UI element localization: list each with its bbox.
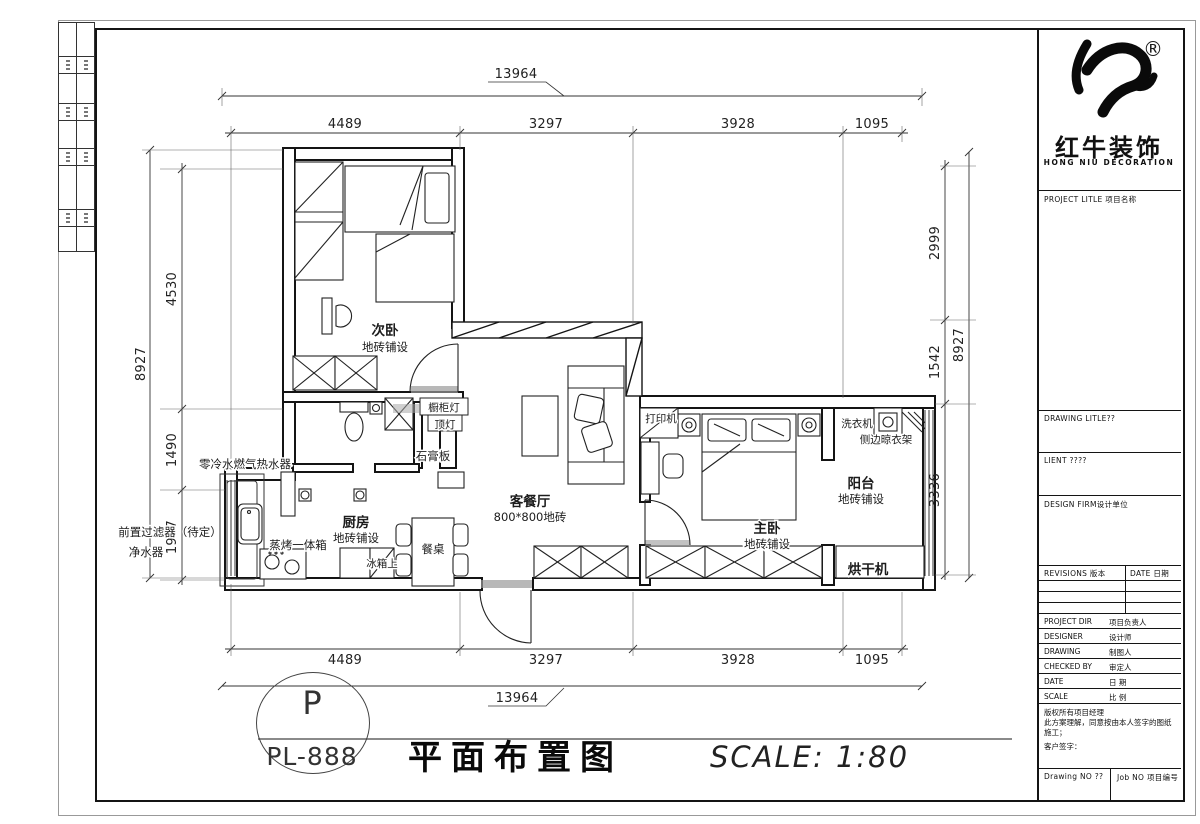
row-label-cn: 项目负责人 bbox=[1109, 617, 1147, 628]
room-kitchen-finish: 地砖铺设 bbox=[333, 531, 379, 545]
label-washer: 洗衣机 bbox=[841, 417, 873, 430]
room-master-finish: 地砖铺设 bbox=[744, 537, 790, 551]
tb-drawing-title-section: DRAWING LITLE?? bbox=[1037, 410, 1181, 452]
room-bedroom2-finish: 地砖铺设 bbox=[362, 340, 408, 354]
label-ceiling-light: 顶灯 bbox=[435, 419, 456, 431]
dim-bottom-seg2: 3928 bbox=[721, 653, 755, 668]
furniture bbox=[238, 162, 925, 586]
room-master-name: 主卧 bbox=[754, 520, 782, 537]
chair bbox=[396, 524, 411, 546]
tb-client-section: LIENT ???? bbox=[1037, 452, 1181, 495]
hongniu-bull-logo: ® bbox=[1057, 38, 1161, 126]
room-living-name: 客餐厅 bbox=[509, 493, 551, 510]
label-cabinet-light: 橱柜灯 bbox=[428, 401, 460, 414]
sofa-pillow bbox=[574, 394, 605, 425]
tb-row-designer: DESIGNER 设计师 bbox=[1037, 628, 1181, 644]
design-firm-label: DESIGN FIRM设计单位 bbox=[1044, 499, 1128, 510]
drawing-no-label: Drawing NO ?? bbox=[1044, 772, 1103, 781]
badge-letter: P bbox=[256, 684, 368, 722]
revision-row bbox=[1037, 602, 1181, 603]
downlight bbox=[301, 491, 309, 499]
door-bedroom2 bbox=[410, 344, 458, 392]
downlight bbox=[356, 491, 364, 499]
revision-row bbox=[1037, 580, 1181, 581]
label-pre-filter: 前置过滤器（待定） bbox=[118, 525, 222, 539]
tb-project-section: PROJECT LITLE 项目名称 bbox=[1037, 190, 1181, 410]
label-water-purifier: 净水器 bbox=[129, 545, 164, 559]
dim-right-overall: 8927 bbox=[952, 328, 967, 362]
label-fridge: 冰箱上 bbox=[366, 557, 398, 570]
revision-date-label: DATE 日期 bbox=[1130, 568, 1169, 579]
chair-bedroom2 bbox=[336, 305, 352, 327]
label-side-rack: 侧边晾衣架 bbox=[860, 433, 913, 446]
room-balcony-name: 阳台 bbox=[848, 475, 875, 492]
label-gypsum-board: 石膏板 bbox=[416, 449, 451, 463]
tb-row-date: DATE 日 期 bbox=[1037, 673, 1181, 689]
row-label-cn: 审定人 bbox=[1109, 662, 1132, 673]
room-kitchen-name: 厨房 bbox=[343, 514, 370, 531]
chair-master bbox=[663, 454, 683, 478]
door-entrance bbox=[480, 591, 531, 643]
dimension-lines bbox=[142, 82, 976, 706]
tb-design-firm-section: DESIGN FIRM设计单位 bbox=[1037, 495, 1181, 565]
dim-right-seg1: 1542 bbox=[928, 345, 943, 379]
dim-top-seg0: 4489 bbox=[328, 117, 362, 132]
dimension-text: 13964 4489 3297 3928 1095 4489 3297 3928… bbox=[134, 67, 967, 706]
dim-bottom-seg3: 1095 bbox=[855, 653, 889, 668]
row-label: DATE bbox=[1044, 677, 1064, 686]
drawing-title-label: DRAWING LITLE?? bbox=[1044, 414, 1115, 423]
row-label-cn: 日 期 bbox=[1109, 677, 1126, 688]
wardrobe-bedroom2 bbox=[295, 162, 343, 280]
row-label-cn: 设计师 bbox=[1109, 632, 1132, 643]
label-dining-table: 餐桌 bbox=[422, 542, 445, 556]
copyright-line1: 版权所有项目经理 bbox=[1044, 708, 1174, 718]
scale-text: SCALE: 1:80 bbox=[710, 740, 909, 774]
dim-left-seg1: 1490 bbox=[165, 433, 180, 467]
room-living-finish: 800*800地砖 bbox=[494, 510, 567, 524]
tb-row-checked-by: CHECKED BY 审定人 bbox=[1037, 658, 1181, 674]
row-label-cn: 制图人 bbox=[1109, 647, 1132, 658]
dim-left-overall: 8927 bbox=[134, 347, 149, 381]
toilet-tank bbox=[340, 402, 368, 412]
chair bbox=[453, 524, 468, 546]
drawing-title: 平面布置图 bbox=[408, 730, 623, 779]
revision-row bbox=[1037, 591, 1181, 592]
chair bbox=[396, 554, 411, 576]
coffee-table bbox=[522, 396, 558, 456]
toilet-bowl bbox=[345, 413, 363, 441]
row-label: CHECKED BY bbox=[1044, 662, 1092, 671]
client-label: LIENT ???? bbox=[1044, 456, 1087, 465]
water-heater-unit bbox=[281, 472, 295, 516]
tb-row-project-dir: PROJECT DIR 项目负责人 bbox=[1037, 613, 1181, 629]
tb-row-scale: SCALE 比 例 bbox=[1037, 688, 1181, 704]
label-water-heater: 零冷水燃气热水器 bbox=[199, 457, 291, 471]
bed2-bedroom2 bbox=[376, 234, 454, 302]
label-steam-oven: 蒸烤一体箱 bbox=[269, 538, 327, 552]
dim-top-overall: 13964 bbox=[495, 67, 538, 82]
row-label: PROJECT DIR bbox=[1044, 617, 1092, 626]
desk-bedroom2 bbox=[322, 298, 332, 334]
client-signature-label: 客户签字： bbox=[1044, 742, 1174, 752]
room-bedroom2-name: 次卧 bbox=[372, 322, 399, 339]
label-printer: 打印机 bbox=[645, 412, 677, 425]
brand-name-en: HONG NIU DECORATION bbox=[1037, 158, 1181, 167]
chair bbox=[453, 554, 468, 576]
dim-top-seg3: 1095 bbox=[855, 117, 889, 132]
row-label: DRAWING bbox=[1044, 647, 1080, 656]
dim-bottom-seg0: 4489 bbox=[328, 653, 362, 668]
dim-right-seg0: 2999 bbox=[928, 226, 943, 260]
dim-left-seg0: 4530 bbox=[165, 272, 180, 306]
drawing-sheet: 13964 4489 3297 3928 1095 4489 3297 3928… bbox=[0, 0, 1200, 824]
door-master bbox=[645, 500, 690, 545]
registered-mark: ® bbox=[1143, 38, 1161, 61]
tb-number-row: Drawing NO ?? Job NO 项目编号 bbox=[1037, 768, 1181, 800]
tb-copyright-section: 版权所有项目经理 此方案理解，同意按由本人签字的图纸施工； 客户签字： bbox=[1037, 703, 1181, 768]
dim-top-seg2: 3928 bbox=[721, 117, 755, 132]
dim-right-seg2: 3336 bbox=[928, 473, 943, 507]
desk-master bbox=[641, 442, 659, 494]
pillow bbox=[425, 173, 449, 223]
room-balcony-finish: 地砖铺设 bbox=[838, 492, 884, 506]
title-block: ® 红牛装饰 HONG NIU DECORATION PROJECT LITLE… bbox=[1037, 28, 1181, 800]
dim-bottom-overall: 13964 bbox=[496, 691, 539, 706]
dim-top-seg1: 3297 bbox=[529, 117, 563, 132]
tb-row-drawing: DRAWING 制图人 bbox=[1037, 643, 1181, 659]
badge-number: PL-888 bbox=[256, 742, 368, 771]
revisions-label: REVISIONS 版本 bbox=[1044, 568, 1106, 579]
label-dryer: 烘干机 bbox=[848, 561, 889, 578]
cabinet bbox=[438, 472, 464, 488]
copyright-line2: 此方案理解，同意按由本人签字的图纸施工； bbox=[1044, 718, 1174, 738]
dim-bottom-seg1: 3297 bbox=[529, 653, 563, 668]
floor-plan-canvas: 13964 4489 3297 3928 1095 4489 3297 3928… bbox=[0, 0, 1200, 824]
project-title-label: PROJECT LITLE 项目名称 bbox=[1044, 194, 1136, 205]
tb-revisions-table: REVISIONS 版本 DATE 日期 bbox=[1037, 565, 1181, 613]
row-label: SCALE bbox=[1044, 692, 1068, 701]
row-label: DESIGNER bbox=[1044, 632, 1083, 641]
job-no-label: Job NO 项目编号 bbox=[1117, 772, 1178, 783]
row-label-cn: 比 例 bbox=[1109, 692, 1126, 703]
